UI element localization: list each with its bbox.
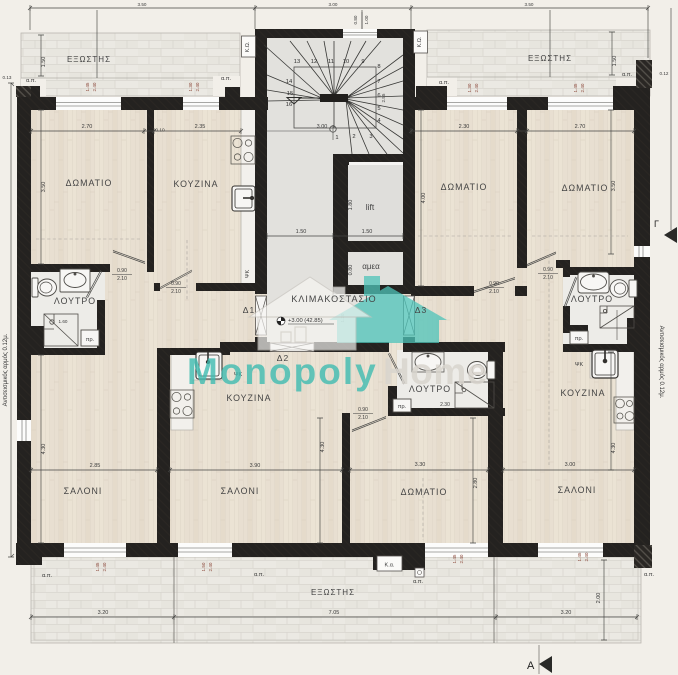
svg-text:0.12: 0.12 [660, 71, 669, 76]
svg-text:11: 11 [328, 59, 334, 65]
svg-text:ΕΞΩΣΤΗΣ: ΕΞΩΣΤΗΣ [67, 55, 111, 64]
svg-text:ΨΚ: ΨΚ [245, 270, 251, 279]
svg-text:α.π.: α.π. [42, 573, 53, 579]
svg-text:0.90: 0.90 [117, 268, 127, 274]
svg-text:ΔΩΜΑΤΙΟ: ΔΩΜΑΤΙΟ [441, 182, 488, 192]
svg-text:2.10: 2.10 [117, 276, 127, 282]
svg-text:3.50: 3.50 [525, 2, 534, 7]
svg-text:1.30: 1.30 [467, 83, 472, 92]
svg-text:2.00: 2.00 [596, 593, 602, 604]
svg-text:2.40: 2.40 [580, 83, 585, 92]
svg-text:0.90: 0.90 [171, 281, 181, 287]
svg-text:0.90: 0.90 [489, 281, 499, 287]
svg-text:Αντισεισμικός αρμός 0.12μ.: Αντισεισμικός αρμός 0.12μ. [2, 333, 9, 406]
svg-text:ΛΟΥΤΡΟ: ΛΟΥΤΡΟ [571, 294, 613, 304]
svg-text:2.10: 2.10 [171, 289, 181, 295]
svg-text:1: 1 [335, 135, 338, 141]
svg-text:2.10: 2.10 [489, 289, 499, 295]
svg-text:0.90: 0.90 [543, 267, 553, 273]
svg-text:2.40: 2.40 [208, 562, 213, 571]
svg-text:0.80: 0.80 [353, 15, 358, 24]
svg-text:2.40: 2.40 [584, 552, 589, 561]
svg-text:7: 7 [377, 79, 380, 85]
svg-text:ΚΟΥΖΙΝΑ: ΚΟΥΖΙΝΑ [226, 393, 271, 403]
svg-text:1.30: 1.30 [188, 82, 193, 91]
svg-text:1.45: 1.45 [573, 83, 578, 92]
svg-text:16: 16 [286, 102, 292, 108]
svg-text:2.40: 2.40 [459, 554, 464, 563]
svg-text:ΕΞΩΣΤΗΣ: ΕΞΩΣΤΗΣ [528, 54, 572, 63]
svg-text:πρ.: πρ. [575, 336, 584, 342]
svg-text:15: 15 [287, 91, 293, 97]
svg-text:3: 3 [369, 134, 372, 140]
svg-text:2.10: 2.10 [543, 275, 553, 281]
svg-text:1.45: 1.45 [85, 82, 90, 91]
svg-text:1.50: 1.50 [41, 57, 47, 68]
svg-text:3.90: 3.90 [250, 463, 261, 469]
svg-text:0.90: 0.90 [358, 407, 368, 413]
svg-text:α.π.: α.π. [622, 72, 633, 78]
svg-text:1.50: 1.50 [362, 229, 373, 235]
svg-text:ΣΑΛΟΝΙ: ΣΑΛΟΝΙ [64, 486, 103, 496]
svg-text:1.60: 1.60 [59, 319, 68, 324]
svg-text:1.50: 1.50 [296, 229, 307, 235]
svg-text:ΚΛΙΜΑΚΟΣΤΑΣΙΟ: ΚΛΙΜΑΚΟΣΤΑΣΙΟ [291, 294, 376, 304]
svg-text:0.80: 0.80 [348, 265, 354, 276]
svg-text:πρ.: πρ. [398, 404, 407, 410]
svg-text:1.50: 1.50 [612, 56, 618, 67]
svg-text:2: 2 [352, 134, 355, 140]
svg-text:Κ.α.: Κ.α. [385, 563, 395, 569]
svg-text:Αντισεισμικός αρμός 0.12μ.: Αντισεισμικός αρμός 0.12μ. [658, 326, 665, 399]
svg-text:ΛΟΥΤΡΟ: ΛΟΥΤΡΟ [54, 296, 96, 306]
svg-text:4.30: 4.30 [320, 442, 326, 453]
svg-text:Δ1: Δ1 [243, 305, 255, 315]
svg-text:3.50: 3.50 [138, 2, 147, 7]
svg-text:2.40: 2.40 [474, 83, 479, 92]
svg-text:3.30: 3.30 [415, 462, 426, 468]
svg-text:αμεα: αμεα [362, 262, 380, 271]
svg-text:3.00: 3.00 [565, 462, 576, 468]
svg-text:+3.00 (42.85): +3.00 (42.85) [288, 318, 323, 324]
svg-text:3.00: 3.00 [329, 2, 338, 7]
svg-text:ΕΞΩΣΤΗΣ: ΕΞΩΣΤΗΣ [311, 588, 355, 597]
svg-text:α.π.: α.π. [439, 80, 450, 86]
svg-text:0.10: 0.10 [155, 128, 165, 134]
svg-text:1.50: 1.50 [201, 562, 206, 571]
svg-text:2.40: 2.40 [92, 82, 97, 91]
svg-text:α.π.: α.π. [413, 579, 424, 585]
svg-text:1.45: 1.45 [577, 552, 582, 561]
svg-text:4.00: 4.00 [421, 193, 427, 204]
svg-text:lift: lift [366, 202, 375, 212]
svg-text:Γ: Γ [654, 219, 659, 229]
svg-text:1.45: 1.45 [95, 562, 100, 571]
svg-text:Κ.Ω.: Κ.Ω. [417, 36, 423, 47]
svg-text:πρ.: πρ. [86, 337, 95, 343]
svg-text:ΨΚ: ΨΚ [575, 362, 584, 368]
svg-text:2.35: 2.35 [195, 124, 206, 130]
svg-text:α.π.: α.π. [644, 572, 655, 578]
svg-text:2.40: 2.40 [195, 82, 200, 91]
svg-text:ΣΑΛΟΝΙ: ΣΑΛΟΝΙ [221, 486, 260, 496]
svg-text:ΔΩΜΑΤΙΟ: ΔΩΜΑΤΙΟ [562, 183, 609, 193]
svg-text:8: 8 [377, 64, 380, 70]
svg-text:Δ2: Δ2 [277, 353, 289, 363]
svg-text:ΛΟΥΤΡΟ: ΛΟΥΤΡΟ [409, 384, 451, 394]
svg-text:3.50: 3.50 [41, 182, 47, 193]
svg-text:4.30: 4.30 [611, 443, 617, 454]
svg-text:3.00: 3.00 [317, 124, 328, 130]
svg-text:ΚΟΥΖΙΝΑ: ΚΟΥΖΙΝΑ [173, 179, 218, 189]
svg-text:ΔΩΜΑΤΙΟ: ΔΩΜΑΤΙΟ [401, 487, 448, 497]
svg-text:2.10: 2.10 [358, 415, 368, 421]
svg-text:14: 14 [286, 79, 293, 85]
svg-text:10: 10 [343, 59, 349, 65]
svg-text:2.70: 2.70 [82, 124, 93, 130]
svg-text:13: 13 [294, 59, 300, 65]
svg-text:1.00: 1.00 [364, 15, 369, 24]
svg-text:A: A [527, 660, 535, 672]
svg-text:4.30: 4.30 [41, 444, 47, 455]
svg-text:2.30: 2.30 [440, 402, 450, 408]
svg-text:α.π.: α.π. [221, 76, 232, 82]
svg-text:3.50: 3.50 [611, 181, 617, 192]
svg-text:2.30: 2.30 [459, 124, 470, 130]
svg-text:2.85: 2.85 [90, 463, 101, 469]
svg-text:3.20: 3.20 [561, 610, 572, 616]
svg-text:5: 5 [377, 106, 380, 112]
svg-text:2.40: 2.40 [102, 562, 107, 571]
svg-text:2.55: 2.55 [381, 93, 386, 102]
svg-text:7.05: 7.05 [329, 610, 340, 616]
svg-text:2.80: 2.80 [473, 478, 479, 489]
svg-text:2.70: 2.70 [575, 124, 586, 130]
svg-text:ΣΑΛΟΝΙ: ΣΑΛΟΝΙ [558, 485, 597, 495]
svg-text:3.20: 3.20 [98, 610, 109, 616]
svg-text:Δ3: Δ3 [415, 305, 427, 315]
svg-text:Κ.Ω.: Κ.Ω. [245, 41, 251, 52]
svg-text:α.π.: α.π. [26, 78, 37, 84]
svg-text:α.π.: α.π. [254, 572, 265, 578]
svg-text:12: 12 [311, 59, 317, 65]
svg-text:0.13: 0.13 [3, 75, 12, 80]
svg-text:ΔΩΜΑΤΙΟ: ΔΩΜΑΤΙΟ [66, 178, 113, 188]
svg-text:1.80: 1.80 [348, 200, 354, 211]
svg-text:9: 9 [361, 59, 364, 65]
svg-text:1.45: 1.45 [452, 554, 457, 563]
svg-text:ΚΟΥΖΙΝΑ: ΚΟΥΖΙΝΑ [560, 388, 605, 398]
